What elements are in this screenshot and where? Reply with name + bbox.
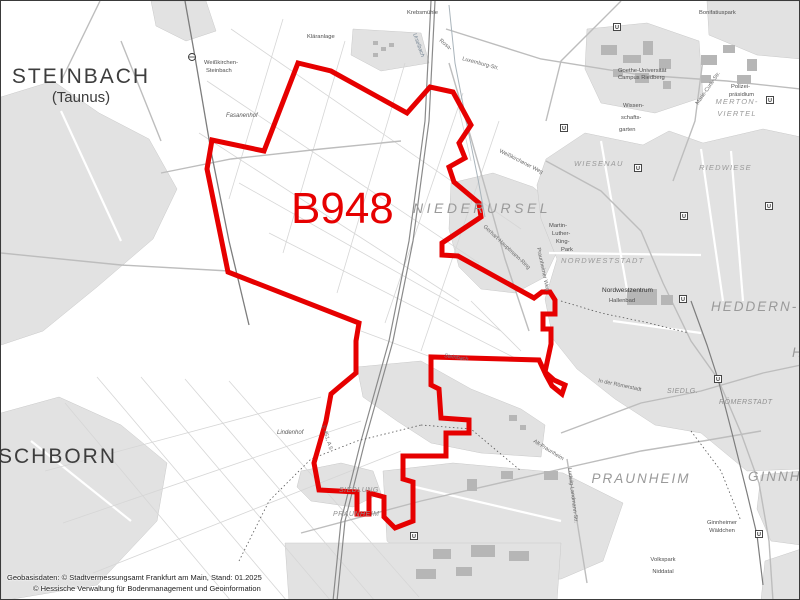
road <box>121 41 161 141</box>
building <box>373 41 378 45</box>
ubahn-station-icon: U <box>768 98 772 104</box>
building <box>520 425 526 430</box>
building <box>661 295 673 305</box>
ubahn-station-icon: U <box>757 532 761 538</box>
field-path <box>361 331 431 357</box>
building <box>467 479 477 491</box>
map-label-wei-kirchener-weg: Weißkirchener Weg <box>498 148 544 175</box>
map-label-luxemburg-str: Luxemburg-Str. <box>461 56 499 72</box>
building <box>509 551 529 561</box>
map-label-niddatal: Niddatal <box>652 569 673 575</box>
field-path <box>471 301 521 351</box>
ubahn-station-icon: U <box>615 25 619 31</box>
map-label-park: Park <box>561 247 573 253</box>
field-path <box>337 63 405 293</box>
ubahn-station-icon: U <box>412 534 416 540</box>
map-label-steinbach: STEINBACH <box>12 65 150 88</box>
ubahn-station-icon: U <box>562 126 566 132</box>
map-label-wissen: Wissen- <box>623 103 644 109</box>
map-label-siedlg: SIEDLG. <box>667 388 698 395</box>
building <box>416 569 436 579</box>
map-label-schafts: schafts- <box>621 115 641 121</box>
building <box>723 45 735 53</box>
building <box>509 415 517 421</box>
map-label-campus-riedberg: Campus Riedberg <box>618 75 665 81</box>
map-label-krebsm-hle: Krebsmühle <box>407 10 438 16</box>
map-label-riedwiese: RIEDWIESE <box>699 163 752 172</box>
ubahn-station-icon: U <box>681 297 685 303</box>
map-label-niederursel: NIEDERURSEL <box>413 200 551 216</box>
building <box>501 471 513 479</box>
map-label-heddern: HEDDERN- <box>711 299 798 314</box>
map-label-pr-sidium: präsidium <box>729 92 754 98</box>
building <box>701 55 717 65</box>
building <box>471 545 495 557</box>
building <box>623 55 641 63</box>
building <box>373 53 378 57</box>
district-boundary-b948 <box>207 63 565 528</box>
map-label-merton: MERTON- <box>715 97 758 106</box>
map-label-ginnheimer: Ginnheimer <box>707 520 737 526</box>
map-label-fasanenhof: Fasanenhof <box>226 113 259 119</box>
map-label-garten: garten <box>619 127 635 133</box>
map-label-schborn: SCHBORN <box>1 445 117 468</box>
urban-area <box>151 1 216 41</box>
map-canvas[interactable]: B948STEINBACH(Taunus)SCHBORNNIEDERURSELH… <box>1 1 800 600</box>
urban-area <box>1 397 167 600</box>
map-label-praunheim: PRAUNHEIM <box>591 471 690 486</box>
ubahn-station-icon: U <box>716 377 720 383</box>
map-label-steinbach: Steinbach <box>444 353 469 363</box>
road <box>161 141 401 173</box>
building <box>433 549 451 559</box>
urban-area <box>357 361 545 457</box>
map-label-steinbach: Steinbach <box>206 68 232 74</box>
map-label-rosa: Rosa- <box>438 38 453 52</box>
map-label-goethe-universit-t: Goethe-Universität <box>618 68 667 74</box>
ubahn-station-icon: U <box>767 204 771 210</box>
map-label-kl-ranlage: Kläranlage <box>307 34 335 40</box>
map-label-wei-kirchen: Weißkirchen- <box>204 60 238 66</box>
map-label-taunus: (Taunus) <box>52 89 110 106</box>
map-label-siedlung: SIEDLUNG <box>339 487 379 494</box>
map-label-martin: Martin- <box>549 223 567 229</box>
map-viewport: B948STEINBACH(Taunus)SCHBORNNIEDERURSELH… <box>0 0 800 600</box>
map-label-king: King- <box>556 239 570 245</box>
map-label-nordweststadt: NORDWESTSTADT <box>561 256 645 265</box>
map-label-luther: Luther- <box>552 231 570 237</box>
map-label-praunheim: PRAUNHEIM <box>333 511 380 518</box>
map-label-r-merstadt: RÖMERSTADT <box>719 398 773 406</box>
building <box>601 45 617 55</box>
map-label-w-ldchen: Wäldchen <box>709 528 735 534</box>
building <box>747 59 757 71</box>
building <box>643 41 653 55</box>
map-label-viertel: VIERTEL <box>717 109 757 118</box>
map-label-he: HE <box>792 345 800 360</box>
map-label-lindenhof: Lindenhof <box>277 430 305 436</box>
building <box>737 75 751 84</box>
building <box>456 567 472 576</box>
ubahn-station-icon: U <box>636 166 640 172</box>
map-label-nordwestzentrum: Nordwestzentrum <box>602 287 653 294</box>
building <box>381 47 386 51</box>
urban-area <box>761 549 800 600</box>
map-label-wiesenau: WIESENAU <box>574 159 624 168</box>
map-label-polizei: Polizei- <box>731 84 750 90</box>
map-label-bonifatiuspark: Bonifatiuspark <box>699 10 736 16</box>
area-label-b948: B948 <box>291 184 394 233</box>
map-label-volkspark: Volkspark <box>650 557 675 563</box>
urban-area <box>1 81 177 345</box>
ubahn-station-icon: U <box>682 214 686 220</box>
building <box>544 471 558 480</box>
map-label-hallenbad: Hallenbad <box>609 298 635 304</box>
map-label-ginnh: GINNH <box>748 469 800 484</box>
building <box>663 81 671 89</box>
building <box>389 43 394 47</box>
